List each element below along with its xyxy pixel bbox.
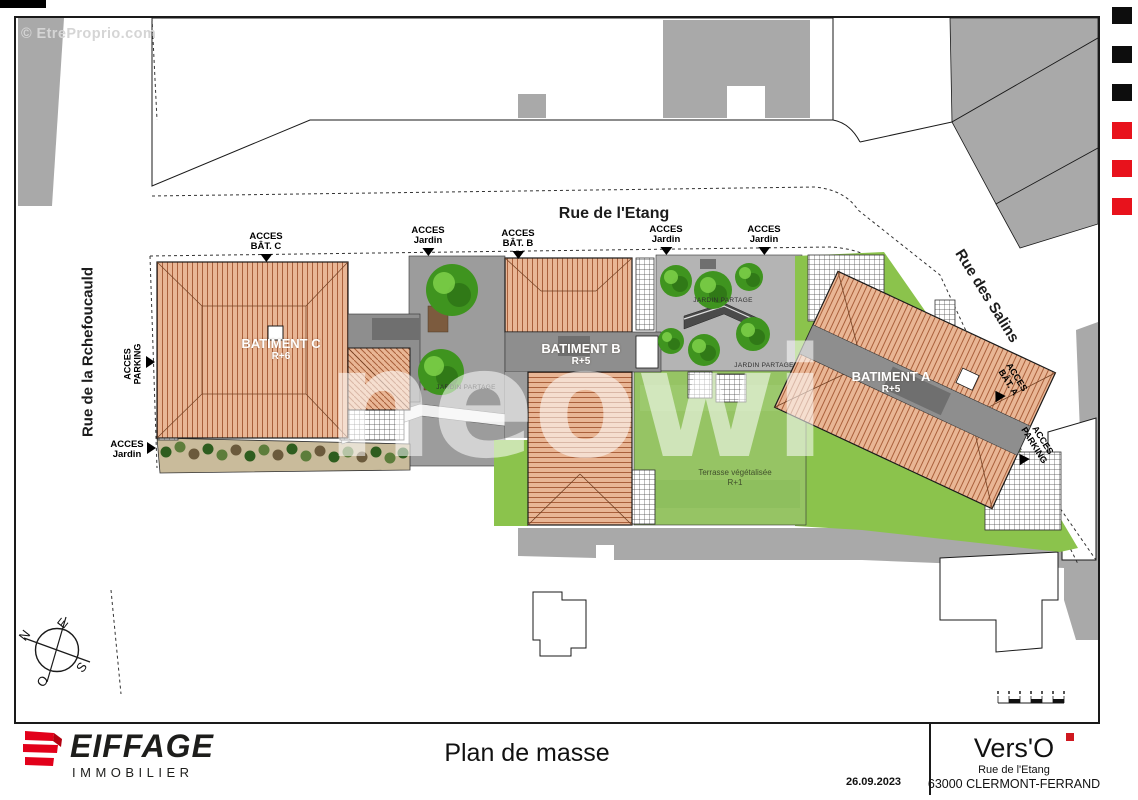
- title-block: EIFFAGE IMMOBILIER Plan de masse 26.09.2…: [14, 722, 1100, 795]
- project-name: Vers'O: [974, 733, 1054, 764]
- project-street: Rue de l'Etang: [978, 764, 1050, 776]
- compass-n: N: [16, 627, 34, 644]
- drawing-date: 26.09.2023: [846, 776, 901, 788]
- edge-marker-black: [1112, 7, 1132, 24]
- plan-sheet: N E S O Rue de l'E: [0, 0, 1138, 800]
- corner-registration-mark: [0, 0, 46, 8]
- eiffage-logo-icon: [22, 730, 68, 770]
- drawing-title: Plan de masse: [444, 739, 609, 768]
- edge-marker-black: [1112, 46, 1132, 63]
- site-plan-svg: N E S O: [0, 0, 1138, 800]
- edge-marker-red: [1112, 122, 1132, 139]
- scale-bar: [997, 691, 1065, 703]
- company-division: IMMOBILIER: [72, 765, 194, 780]
- edge-marker-black: [1112, 84, 1132, 101]
- watermark-etreproprio: © EtreProprio.com: [21, 26, 156, 42]
- company-name: EIFFAGE: [70, 728, 214, 765]
- edge-marker-red: [1112, 198, 1132, 215]
- project-red-mark-icon: [1066, 733, 1074, 741]
- edge-marker-red: [1112, 160, 1132, 177]
- project-city: 63000 CLERMONT-FERRAND: [928, 777, 1100, 791]
- compass-rose: N E S O: [16, 615, 91, 690]
